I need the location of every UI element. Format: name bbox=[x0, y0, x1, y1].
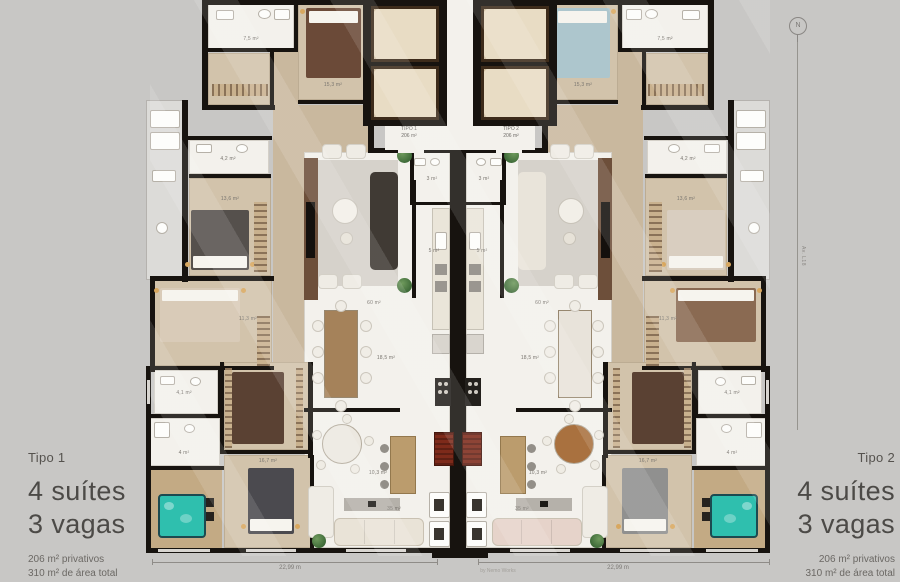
dining-chair bbox=[544, 372, 556, 384]
wall bbox=[516, 408, 612, 412]
living-sofa bbox=[518, 172, 546, 270]
coffee-table bbox=[332, 198, 358, 224]
area-details: 206 m² privativos 310 m² de área total bbox=[28, 553, 126, 581]
dining-chair bbox=[569, 300, 581, 312]
barbecue-grill bbox=[434, 432, 454, 466]
room-area-label: 15,3 m² bbox=[561, 82, 605, 88]
elevator-cabin bbox=[481, 66, 549, 120]
wall bbox=[202, 0, 374, 5]
wardrobe bbox=[648, 84, 704, 96]
wardrobe bbox=[649, 202, 662, 272]
room-area-label: 4 m² bbox=[710, 450, 754, 456]
bed-pillows bbox=[309, 11, 358, 23]
chair bbox=[542, 436, 552, 446]
jacuzzi-step bbox=[206, 512, 214, 521]
armchair bbox=[308, 486, 334, 538]
room-area-label: 3 m² bbox=[410, 176, 454, 182]
wall bbox=[410, 202, 452, 205]
wall bbox=[692, 466, 770, 470]
room-area-label: 4 m² bbox=[162, 450, 206, 456]
window bbox=[510, 549, 570, 552]
wall bbox=[304, 408, 400, 412]
wall bbox=[708, 0, 714, 110]
armchair bbox=[550, 144, 570, 159]
room-area-label: 10,3 m² bbox=[356, 470, 400, 476]
stool bbox=[527, 480, 536, 489]
room-area-label: 4,2 m² bbox=[206, 156, 250, 162]
wall bbox=[604, 450, 696, 454]
room-area-label: 18,5 m² bbox=[508, 355, 552, 361]
burner bbox=[474, 390, 478, 394]
room-area-label: 5 m² bbox=[460, 248, 504, 254]
sofa-seam bbox=[551, 520, 552, 544]
bedside-lamp bbox=[154, 288, 159, 293]
credit-text: by Nemo Works bbox=[458, 568, 538, 574]
wall bbox=[642, 50, 646, 108]
unit-info-right: Tipo 2 4 suítes 3 vagas 206 m² privativo… bbox=[797, 450, 895, 581]
tv-screen bbox=[306, 202, 315, 258]
shower bbox=[154, 422, 170, 438]
wall bbox=[642, 276, 766, 281]
dimension-label-left: 22,99 m bbox=[268, 565, 312, 571]
bedside-lamp bbox=[185, 262, 190, 267]
barbecue-grill bbox=[462, 432, 482, 466]
wall bbox=[150, 276, 274, 281]
dimension-tick bbox=[478, 559, 479, 565]
wardrobe bbox=[646, 316, 659, 366]
chair bbox=[316, 460, 326, 470]
shower bbox=[626, 9, 642, 20]
water-heater bbox=[748, 222, 760, 234]
plant bbox=[504, 278, 519, 293]
ac-unit bbox=[736, 110, 766, 128]
service-fixture bbox=[434, 499, 444, 511]
water-heater bbox=[156, 222, 168, 234]
armchair bbox=[318, 274, 338, 289]
wardrobe bbox=[296, 368, 303, 448]
wardrobe bbox=[613, 368, 620, 448]
wall bbox=[189, 174, 271, 178]
plant bbox=[397, 278, 412, 293]
burner bbox=[468, 390, 472, 394]
room-area-label: 35 m² bbox=[500, 506, 544, 512]
core-label-tipo2: TIPO 2 206 m² bbox=[481, 126, 541, 139]
wall bbox=[642, 366, 766, 370]
wall bbox=[728, 100, 734, 282]
closet-rug bbox=[632, 372, 684, 444]
chair bbox=[364, 436, 374, 446]
dimension-tick bbox=[437, 559, 438, 565]
toilet bbox=[668, 144, 680, 153]
armchair bbox=[578, 274, 598, 289]
wall bbox=[464, 202, 506, 205]
stove bbox=[435, 378, 451, 406]
lavabo-sink bbox=[490, 158, 502, 166]
core-type: TIPO 1 bbox=[401, 126, 417, 132]
door-gap bbox=[496, 150, 522, 153]
bed-pillows bbox=[624, 519, 666, 531]
elevator-cabin bbox=[371, 6, 439, 62]
dining-chair bbox=[592, 320, 604, 332]
dining-table bbox=[324, 310, 358, 398]
shower bbox=[274, 9, 290, 20]
appliance bbox=[469, 281, 481, 292]
central-spine-wall bbox=[450, 128, 458, 555]
shower bbox=[746, 422, 762, 438]
bedside-lamp bbox=[670, 524, 675, 529]
wall bbox=[645, 174, 727, 178]
dining-chair bbox=[360, 372, 372, 384]
bed-pillows bbox=[558, 11, 607, 23]
burner bbox=[468, 382, 472, 386]
bed-pillows bbox=[669, 256, 723, 268]
north-compass-icon: N bbox=[789, 17, 807, 35]
bath-sink bbox=[216, 10, 234, 20]
toilet bbox=[645, 9, 658, 19]
room-area-label: 18,5 m² bbox=[364, 355, 408, 361]
ac-unit bbox=[736, 132, 766, 150]
jacuzzi-step bbox=[702, 498, 710, 507]
jacuzzi-ripple bbox=[724, 514, 736, 523]
private-area-label: 206 m² privativos bbox=[797, 553, 895, 567]
area-details: 206 m² privativos 310 m² de área total bbox=[797, 553, 895, 581]
compass-tick bbox=[797, 34, 798, 42]
stove bbox=[465, 378, 481, 406]
ac-unit bbox=[150, 132, 180, 150]
bath-sink bbox=[196, 144, 212, 153]
jacuzzi-ripple bbox=[180, 514, 192, 523]
room-area-label: 11,3 m² bbox=[226, 316, 270, 322]
window bbox=[766, 380, 769, 404]
jacuzzi-step bbox=[206, 498, 214, 507]
bed-pillows bbox=[193, 256, 247, 268]
wall bbox=[146, 466, 224, 470]
window bbox=[246, 549, 296, 552]
fridge bbox=[432, 334, 450, 354]
dining-chair bbox=[544, 320, 556, 332]
wall bbox=[692, 362, 696, 454]
dining-table bbox=[558, 310, 592, 398]
floor-plan-canvas: 15,3 m² 7,5 m² 13,6 m² 4,2 m² 11,3 m² 4,… bbox=[0, 0, 900, 582]
room-area-label: 10,3 m² bbox=[516, 470, 560, 476]
dining-chair bbox=[335, 400, 347, 412]
bedside-lamp bbox=[241, 288, 246, 293]
room-area-label: 13,6 m² bbox=[208, 196, 252, 202]
wall bbox=[618, 4, 622, 52]
room-area-label: 4,1 m² bbox=[162, 390, 206, 396]
suites-label: 4 suítes bbox=[28, 475, 126, 508]
wall bbox=[294, 4, 298, 52]
bedside-lamp bbox=[726, 262, 731, 267]
elevator-cabin bbox=[371, 66, 439, 120]
chair bbox=[594, 430, 604, 440]
dimension-line-right bbox=[478, 562, 770, 563]
total-area-label: 310 m² de área total bbox=[28, 567, 126, 581]
street-axis-line bbox=[797, 42, 798, 430]
closet1-floor bbox=[646, 53, 708, 105]
hall-top-floor bbox=[273, 50, 298, 105]
room-area-label: 60 m² bbox=[352, 300, 396, 306]
street-label: Av. L18 bbox=[800, 246, 806, 266]
wardrobe bbox=[225, 368, 232, 448]
wall bbox=[220, 450, 312, 454]
bed-pillows bbox=[678, 290, 754, 301]
parking-label: 3 vagas bbox=[28, 508, 126, 541]
family-sofa bbox=[334, 518, 424, 546]
wall bbox=[186, 136, 272, 140]
bedside-lamp bbox=[611, 9, 616, 14]
wall bbox=[641, 105, 714, 110]
room-area-label: 16,7 m² bbox=[626, 458, 670, 464]
dimension-tick bbox=[152, 559, 153, 565]
armchair bbox=[342, 274, 362, 289]
laundry-counter bbox=[152, 170, 176, 182]
bed-pillows bbox=[162, 290, 238, 301]
room-area-label: 15,3 m² bbox=[311, 82, 355, 88]
dimension-line-left bbox=[152, 562, 438, 563]
door-gap bbox=[398, 150, 424, 153]
wall bbox=[620, 48, 708, 52]
coffee-table bbox=[558, 198, 584, 224]
bedside-lamp bbox=[670, 288, 675, 293]
burner bbox=[438, 390, 442, 394]
room-area-label: 35 m² bbox=[372, 506, 416, 512]
appliance bbox=[435, 281, 447, 292]
core-area: 206 m² bbox=[503, 133, 519, 139]
private-area-label: 206 m² privativos bbox=[28, 553, 126, 567]
dimension-label-right: 22,99 m bbox=[596, 565, 640, 571]
dining-chair bbox=[312, 320, 324, 332]
jacuzzi-ripple bbox=[164, 502, 174, 510]
bath-sink bbox=[160, 376, 175, 385]
armchair bbox=[554, 274, 574, 289]
wall bbox=[298, 100, 370, 104]
chair bbox=[590, 460, 600, 470]
wall bbox=[202, 0, 208, 110]
dining-chair bbox=[592, 372, 604, 384]
bath-sink bbox=[741, 376, 756, 385]
breakfast-table bbox=[322, 424, 362, 464]
dining-chair bbox=[569, 400, 581, 412]
plant bbox=[312, 534, 326, 548]
toilet bbox=[430, 158, 440, 166]
window bbox=[158, 549, 210, 552]
room-area-label: 16,7 m² bbox=[246, 458, 290, 464]
room-area-label: 7,5 m² bbox=[643, 36, 687, 42]
unit-type-label: Tipo 2 bbox=[797, 450, 895, 465]
parking-label: 3 vagas bbox=[797, 508, 895, 541]
bath-sink bbox=[682, 10, 700, 20]
armchair bbox=[322, 144, 342, 159]
service-fixture bbox=[434, 528, 444, 540]
toilet bbox=[715, 377, 726, 386]
sofa-seam bbox=[521, 520, 522, 544]
wardrobe bbox=[684, 368, 691, 448]
sofa-seam bbox=[364, 520, 365, 544]
stool bbox=[380, 480, 389, 489]
bedside-lamp bbox=[616, 524, 621, 529]
elevator-lobby-floor bbox=[447, 0, 473, 128]
dining-chair bbox=[312, 346, 324, 358]
breakfast-table bbox=[554, 424, 594, 464]
dining-chair bbox=[592, 346, 604, 358]
room-area-label: 60 m² bbox=[520, 300, 564, 306]
lavabo-sink bbox=[414, 158, 426, 166]
unit-info-left: Tipo 1 4 suítes 3 vagas 206 m² privativo… bbox=[28, 450, 126, 581]
bed-pillows bbox=[250, 519, 292, 531]
toilet bbox=[236, 144, 248, 153]
jacuzzi-step bbox=[702, 512, 710, 521]
chair bbox=[312, 430, 322, 440]
wall bbox=[182, 100, 188, 282]
bedside-lamp bbox=[757, 288, 762, 293]
toilet bbox=[184, 424, 195, 433]
toilet bbox=[190, 377, 201, 386]
tv-screen bbox=[601, 202, 610, 258]
room-area-label: 5 m² bbox=[412, 248, 456, 254]
central-spine-wall bbox=[458, 128, 466, 555]
core-area: 206 m² bbox=[401, 133, 417, 139]
armchair bbox=[574, 144, 594, 159]
wall bbox=[644, 136, 730, 140]
appliance bbox=[435, 264, 447, 275]
bedside-lamp bbox=[300, 9, 305, 14]
side-table bbox=[563, 232, 576, 245]
window bbox=[346, 549, 406, 552]
wall bbox=[270, 50, 274, 108]
toilet bbox=[476, 158, 486, 166]
burner bbox=[474, 382, 478, 386]
closet-rug bbox=[232, 372, 284, 444]
wardrobe bbox=[254, 202, 267, 272]
burner bbox=[444, 390, 448, 394]
window bbox=[706, 549, 758, 552]
dimension-tick bbox=[769, 559, 770, 565]
stool bbox=[380, 444, 389, 453]
laundry-counter bbox=[740, 170, 764, 182]
wall bbox=[150, 366, 274, 370]
fridge bbox=[466, 334, 484, 354]
armchair bbox=[582, 486, 608, 538]
living-sofa bbox=[370, 172, 398, 270]
wall bbox=[202, 105, 275, 110]
wall bbox=[208, 48, 296, 52]
closet1-floor bbox=[208, 53, 270, 105]
family-sofa bbox=[492, 518, 582, 546]
stool bbox=[527, 444, 536, 453]
wall bbox=[432, 553, 488, 558]
bath-sink bbox=[704, 144, 720, 153]
wardrobe bbox=[257, 316, 270, 366]
bedside-lamp bbox=[241, 524, 246, 529]
room-area-label: 3 m² bbox=[462, 176, 506, 182]
unit-type-label: Tipo 1 bbox=[28, 450, 126, 465]
room-area-label: 4,2 m² bbox=[666, 156, 710, 162]
room-area-label: 11,3 m² bbox=[646, 316, 690, 322]
room-area-label: 7,5 m² bbox=[229, 36, 273, 42]
wardrobe bbox=[212, 84, 268, 96]
window bbox=[147, 380, 150, 404]
jacuzzi-ripple bbox=[742, 502, 752, 510]
core-type: TIPO 2 bbox=[503, 126, 519, 132]
kitchen-island bbox=[500, 436, 526, 494]
hall-top-floor bbox=[618, 50, 643, 105]
total-area-label: 310 m² de área total bbox=[797, 567, 895, 581]
suites-label: 4 suítes bbox=[797, 475, 895, 508]
wall bbox=[542, 0, 714, 5]
toilet bbox=[258, 9, 271, 19]
dining-chair bbox=[312, 372, 324, 384]
room-area-label: 13,6 m² bbox=[664, 196, 708, 202]
armchair bbox=[346, 144, 366, 159]
appliance bbox=[469, 264, 481, 275]
burner bbox=[444, 382, 448, 386]
burner bbox=[438, 382, 442, 386]
wall bbox=[696, 414, 766, 418]
wall bbox=[150, 414, 220, 418]
service-fixture bbox=[472, 528, 482, 540]
kitchen-island bbox=[390, 436, 416, 494]
window bbox=[620, 549, 670, 552]
plant bbox=[590, 534, 604, 548]
bedside-lamp bbox=[295, 524, 300, 529]
toilet bbox=[721, 424, 732, 433]
elevator-cabin bbox=[481, 6, 549, 62]
service-fixture bbox=[472, 499, 482, 511]
wall bbox=[220, 362, 224, 454]
dining-chair bbox=[360, 320, 372, 332]
side-table bbox=[340, 232, 353, 245]
core-label-tipo1: TIPO 1 206 m² bbox=[379, 126, 439, 139]
ac-unit bbox=[150, 110, 180, 128]
sofa-seam bbox=[394, 520, 395, 544]
chair bbox=[564, 414, 574, 424]
dining-chair bbox=[335, 300, 347, 312]
room-area-label: 4,1 m² bbox=[710, 390, 754, 396]
chair bbox=[342, 414, 352, 424]
